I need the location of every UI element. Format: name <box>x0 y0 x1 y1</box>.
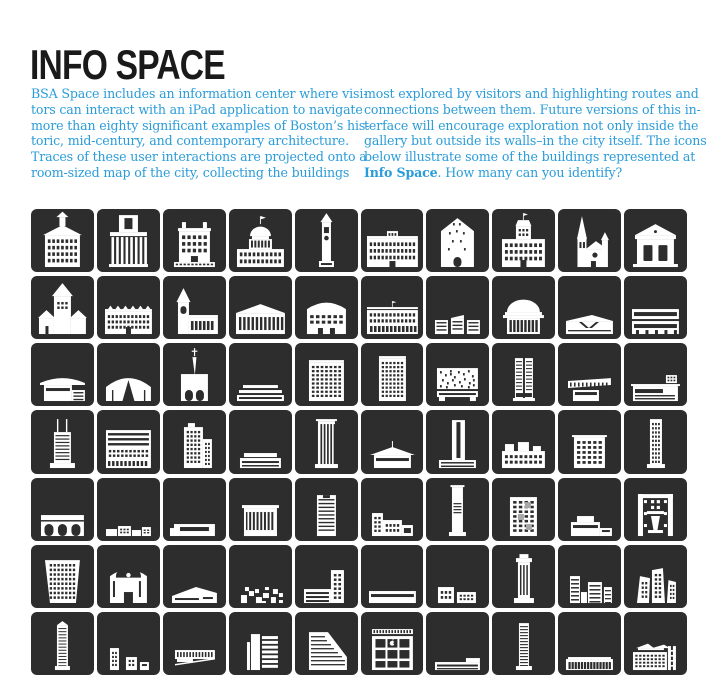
tile-cupola-hall <box>31 209 94 272</box>
tile-tower-and-wing <box>295 545 358 608</box>
tile-cantilever-museum <box>558 343 621 406</box>
banded-lowrise-icon <box>361 545 424 608</box>
tile-mansard-city-hall <box>492 209 555 272</box>
tile-slender-slab <box>426 478 489 541</box>
tile-perforated-garage <box>426 343 489 406</box>
tile-slab-on-base <box>426 410 489 473</box>
tile-cube-trio <box>426 276 489 339</box>
gabled-warehouse-icon <box>426 209 489 272</box>
theater-facade-icon <box>295 276 358 339</box>
tile-cityhall-ziggurat <box>31 545 94 608</box>
spired-church-icon <box>163 343 226 406</box>
band-slab-icon <box>163 478 226 541</box>
tile-stepped-midrise <box>163 410 226 473</box>
tile-slender-highrise <box>31 612 94 675</box>
tile-framework-complex <box>624 612 687 675</box>
slab-on-base-icon <box>426 410 489 473</box>
campus-cluster-icon <box>97 478 160 541</box>
slender-highrise-icon <box>31 612 94 675</box>
intro-right-last-rest: . How many can you identify? <box>438 165 623 180</box>
winged-pavilion-icon <box>361 410 424 473</box>
cityhall-ziggurat-icon <box>31 545 94 608</box>
tile-floorline-block <box>361 343 424 406</box>
cupola-hall-icon <box>31 209 94 272</box>
tile-louvered-cluster <box>558 545 621 608</box>
fan-theater-icon <box>97 545 160 608</box>
tile-georgian-mansion <box>163 209 226 272</box>
tile-decon-towers <box>624 545 687 608</box>
intro-columns: BSA Space includes an information center… <box>31 86 690 181</box>
angular-pavilion-icon <box>558 276 621 339</box>
long-low-slab-icon <box>229 410 292 473</box>
tile-striped-midrise <box>295 478 358 541</box>
tile-banded-lowrise <box>361 545 424 608</box>
rowhouse-block-icon <box>97 276 160 339</box>
colonnade-hotel-icon <box>361 276 424 339</box>
tile-grid-block <box>558 410 621 473</box>
tile-crowned-tower <box>492 545 555 608</box>
ribbon-slab-icon <box>624 276 687 339</box>
tile-window-slab <box>558 612 621 675</box>
twin-tower-icon <box>492 343 555 406</box>
decon-towers-icon <box>624 545 687 608</box>
vault-arena-icon <box>97 343 160 406</box>
tile-colonnade-hotel <box>361 276 424 339</box>
tile-low-terminal <box>229 343 292 406</box>
tile-channel-tower <box>295 410 358 473</box>
grid-block-tall-icon <box>295 343 358 406</box>
striped-midrise-icon <box>295 478 358 541</box>
low-terminal-icon <box>229 343 292 406</box>
tile-cantilever-box <box>163 612 226 675</box>
long-lowrise-icon <box>426 612 489 675</box>
intro-right-lines: most explored by visitors and highlighti… <box>364 86 690 165</box>
tile-angular-lowrise <box>163 545 226 608</box>
tile-greek-temple <box>624 209 687 272</box>
tile-gothic-cathedral <box>558 209 621 272</box>
finned-block-icon <box>229 478 292 541</box>
tile-market-hall <box>229 276 292 339</box>
tile-monitor-hall <box>492 410 555 473</box>
tile-block-cluster <box>229 545 292 608</box>
crowned-tower-icon <box>492 545 555 608</box>
tile-angular-pavilion <box>558 276 621 339</box>
tile-rowhouse-block <box>97 276 160 339</box>
channel-tower-icon <box>295 410 358 473</box>
tile-floorline-tower <box>492 612 555 675</box>
cantilever-museum-icon <box>558 343 621 406</box>
georgian-mansion-icon <box>163 209 226 272</box>
core-office-icon <box>229 612 292 675</box>
tile-market-portico <box>97 209 160 272</box>
tile-stepped-complex <box>361 478 424 541</box>
domed-statehouse-icon <box>229 209 292 272</box>
tile-fan-theater <box>97 545 160 608</box>
tile-ribbon-slab <box>624 276 687 339</box>
building-grid <box>31 209 687 675</box>
arch-garage-icon <box>31 478 94 541</box>
stepped-complex-icon <box>361 478 424 541</box>
tile-finned-block <box>229 478 292 541</box>
tile-stepped-lowrise <box>558 478 621 541</box>
tower-and-wing-icon <box>295 545 358 608</box>
tile-steepled-church <box>163 276 226 339</box>
steepled-church-icon <box>163 276 226 339</box>
tile-band-slab <box>163 478 226 541</box>
gothic-cathedral-icon <box>558 209 621 272</box>
tile-grid-block-tall <box>295 343 358 406</box>
monitor-hall-icon <box>492 410 555 473</box>
tile-slender-grid-tower <box>624 410 687 473</box>
tile-curved-pavilion <box>31 343 94 406</box>
tile-long-low-slab <box>229 410 292 473</box>
framework-complex-icon <box>624 612 687 675</box>
tile-great-dome <box>492 276 555 339</box>
market-hall-icon <box>229 276 292 339</box>
banded-slab-icon <box>97 410 160 473</box>
stepped-lowrise-icon <box>558 478 621 541</box>
tile-banded-slab <box>97 410 160 473</box>
cube-trio-icon <box>426 276 489 339</box>
tile-small-cluster <box>97 612 160 675</box>
tile-winged-pavilion <box>361 410 424 473</box>
tile-arch-garage <box>31 478 94 541</box>
slender-slab-icon <box>426 478 489 541</box>
tile-canopy-retail <box>624 343 687 406</box>
tile-mast-tower <box>31 410 94 473</box>
tile-paneled-midrise <box>492 478 555 541</box>
portal-arch-icon <box>624 478 687 541</box>
romanesque-church-icon <box>31 276 94 339</box>
intro-right-paragraph: most explored by visitors and highlighti… <box>364 86 690 181</box>
tile-campus-cluster <box>97 478 160 541</box>
curved-pavilion-icon <box>31 343 94 406</box>
tile-domed-statehouse <box>229 209 292 272</box>
canopy-retail-icon <box>624 343 687 406</box>
tile-romanesque-church <box>31 276 94 339</box>
tile-palace-facade <box>361 209 424 272</box>
block-cluster-icon <box>229 545 292 608</box>
tile-gabled-warehouse <box>426 209 489 272</box>
tile-block-pair <box>426 545 489 608</box>
perforated-garage-icon <box>426 343 489 406</box>
tile-apple-store <box>361 612 424 675</box>
tile-spired-church <box>163 343 226 406</box>
floorline-tower-icon <box>492 612 555 675</box>
intro-right-last-line: Info Space. How many can you identify? <box>364 165 690 181</box>
clock-tower-icon <box>295 209 358 272</box>
tile-vault-arena <box>97 343 160 406</box>
palace-facade-icon <box>361 209 424 272</box>
stepped-midrise-icon <box>163 410 226 473</box>
tile-clock-tower <box>295 209 358 272</box>
tile-theater-facade <box>295 276 358 339</box>
block-pair-icon <box>426 545 489 608</box>
mansard-city-hall-icon <box>492 209 555 272</box>
tile-twin-tower <box>492 343 555 406</box>
great-dome-icon <box>492 276 555 339</box>
info-space-bold-text: Info Space <box>364 165 438 180</box>
tile-portal-arch <box>624 478 687 541</box>
greek-temple-icon <box>624 209 687 272</box>
mast-tower-icon <box>31 410 94 473</box>
wedge-tower-icon <box>295 612 358 675</box>
floorline-block-icon <box>361 343 424 406</box>
small-cluster-icon <box>97 612 160 675</box>
window-slab-icon <box>558 612 621 675</box>
page-title: INFO SPACE <box>30 44 225 86</box>
market-portico-icon <box>97 209 160 272</box>
apple-store-icon <box>361 612 424 675</box>
slender-grid-tower-icon <box>624 410 687 473</box>
tile-core-office <box>229 612 292 675</box>
tile-long-lowrise <box>426 612 489 675</box>
angular-lowrise-icon <box>163 545 226 608</box>
paneled-midrise-icon <box>492 478 555 541</box>
louvered-cluster-icon <box>558 545 621 608</box>
cantilever-box-icon <box>163 612 226 675</box>
grid-block-icon <box>558 410 621 473</box>
tile-wedge-tower <box>295 612 358 675</box>
intro-left-paragraph: BSA Space includes an information center… <box>31 86 351 181</box>
